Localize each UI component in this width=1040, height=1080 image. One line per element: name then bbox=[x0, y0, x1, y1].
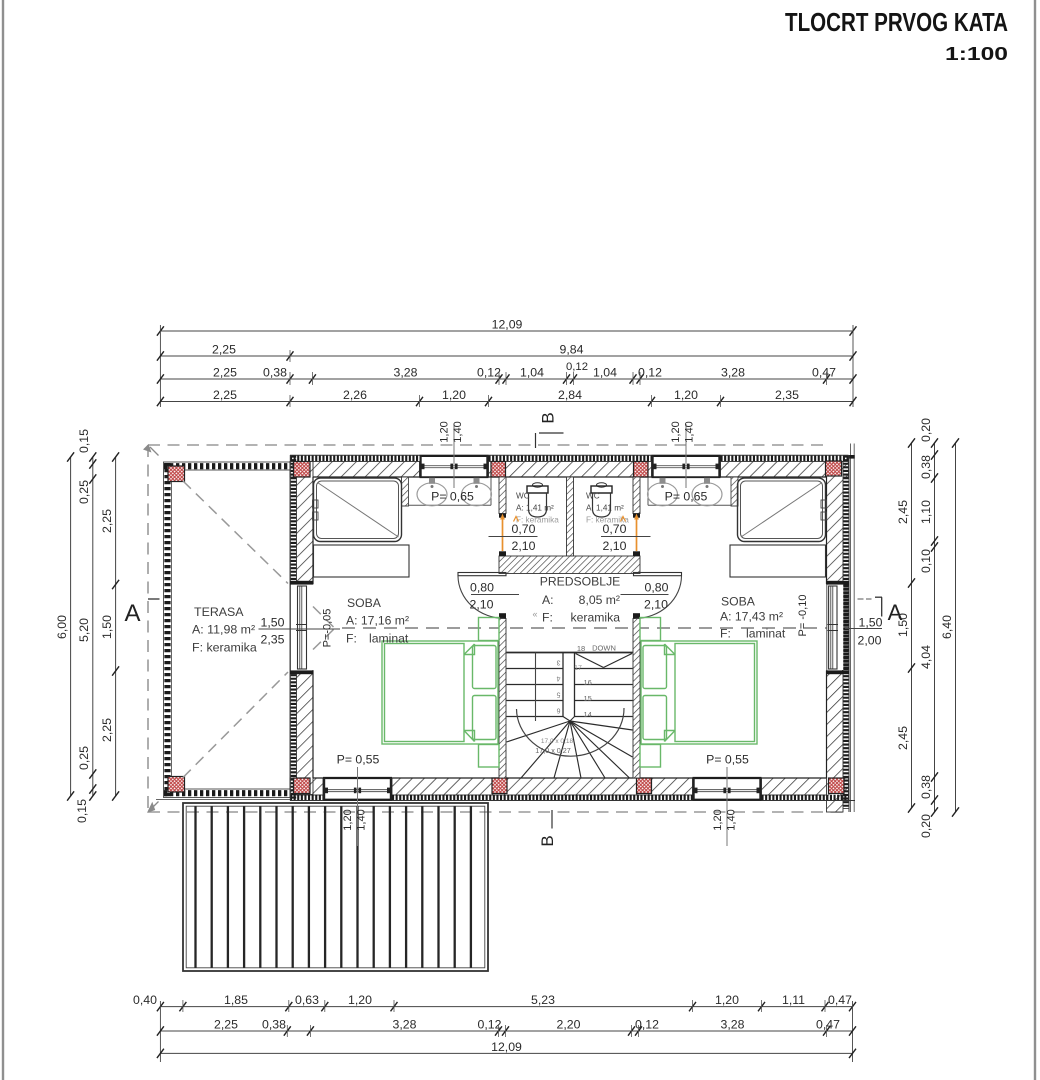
svg-text:2,00: 2,00 bbox=[858, 634, 882, 648]
svg-text:F:: F: bbox=[542, 611, 553, 625]
svg-text:A: A bbox=[124, 600, 140, 627]
svg-text:18: 18 bbox=[577, 644, 585, 653]
svg-text:2,84: 2,84 bbox=[558, 388, 582, 402]
svg-text:B: B bbox=[539, 412, 558, 423]
svg-text:2,45: 2,45 bbox=[896, 500, 910, 524]
svg-text:3,28: 3,28 bbox=[393, 1018, 417, 1032]
svg-text:12,09: 12,09 bbox=[491, 1040, 522, 1054]
svg-text:1,04: 1,04 bbox=[520, 366, 544, 380]
svg-text:A: 11,98 m²: A: 11,98 m² bbox=[192, 623, 255, 637]
svg-text:0,80: 0,80 bbox=[645, 581, 669, 595]
svg-text:6: 6 bbox=[556, 707, 560, 714]
svg-text:TLOCRT PRVOG KATA: TLOCRT PRVOG KATA bbox=[785, 7, 1008, 37]
svg-text:TERASA: TERASA bbox=[194, 605, 244, 619]
svg-text:A: A bbox=[888, 600, 903, 625]
svg-text:0,47: 0,47 bbox=[816, 1018, 840, 1032]
svg-text:PREDSOBLJE: PREDSOBLJE bbox=[540, 575, 621, 589]
svg-text:0,25: 0,25 bbox=[77, 480, 91, 504]
svg-text:3,28: 3,28 bbox=[721, 366, 745, 380]
svg-text:5,23: 5,23 bbox=[531, 993, 555, 1007]
svg-text:6,00: 6,00 bbox=[55, 615, 69, 639]
svg-text:1,40: 1,40 bbox=[726, 809, 738, 830]
svg-text:F:: F: bbox=[346, 632, 357, 646]
svg-text:2,25: 2,25 bbox=[213, 388, 237, 402]
svg-text:1,20: 1,20 bbox=[670, 421, 682, 442]
svg-text:P= 0,65: P= 0,65 bbox=[431, 490, 474, 504]
svg-text:DOWN: DOWN bbox=[592, 644, 616, 653]
svg-text:3,28: 3,28 bbox=[394, 366, 418, 380]
svg-text:0,20: 0,20 bbox=[919, 418, 933, 442]
svg-text:5: 5 bbox=[556, 691, 560, 698]
svg-text:2,25: 2,25 bbox=[212, 343, 236, 357]
svg-text:6,40: 6,40 bbox=[940, 615, 954, 639]
svg-text:0,12: 0,12 bbox=[478, 1018, 502, 1032]
svg-text:0,15: 0,15 bbox=[75, 799, 89, 823]
svg-text:16: 16 bbox=[584, 678, 592, 687]
svg-text:2,10: 2,10 bbox=[512, 539, 536, 553]
svg-text:1,85: 1,85 bbox=[224, 993, 248, 1007]
svg-text:2,10: 2,10 bbox=[603, 539, 627, 553]
svg-text:P=-0,05: P=-0,05 bbox=[322, 609, 334, 648]
svg-text:2,25: 2,25 bbox=[100, 509, 114, 533]
svg-text:2,26: 2,26 bbox=[343, 388, 367, 402]
svg-text:14: 14 bbox=[584, 710, 592, 719]
svg-text:F:: F: bbox=[720, 627, 731, 641]
svg-text:1,20: 1,20 bbox=[442, 388, 466, 402]
svg-text:0,25: 0,25 bbox=[77, 746, 91, 770]
svg-text:laminat: laminat bbox=[369, 632, 409, 646]
svg-text:F: keramika: F: keramika bbox=[192, 641, 257, 655]
svg-text:SOBA: SOBA bbox=[347, 596, 382, 610]
svg-text:0,47: 0,47 bbox=[812, 366, 836, 380]
svg-text:A: 1,41 m²: A: 1,41 m² bbox=[516, 504, 554, 513]
svg-text:1,11: 1,11 bbox=[782, 993, 805, 1007]
svg-text:2,20: 2,20 bbox=[557, 1018, 581, 1032]
svg-text:P= 0,65: P= 0,65 bbox=[665, 490, 708, 504]
svg-text:2,10: 2,10 bbox=[644, 598, 668, 612]
svg-text:0,70: 0,70 bbox=[512, 522, 536, 536]
svg-text:«: « bbox=[532, 609, 537, 619]
svg-text:1,20: 1,20 bbox=[715, 993, 739, 1007]
svg-text:1,20: 1,20 bbox=[348, 993, 372, 1007]
svg-text:0,38: 0,38 bbox=[262, 1018, 286, 1032]
svg-text:WC: WC bbox=[516, 492, 530, 501]
svg-text:1,50: 1,50 bbox=[100, 615, 114, 639]
svg-text:17,0 x 0,27: 17,0 x 0,27 bbox=[535, 746, 571, 755]
svg-text:4: 4 bbox=[556, 675, 560, 682]
svg-text:1,20: 1,20 bbox=[712, 809, 724, 830]
svg-text:1:100: 1:100 bbox=[945, 43, 1008, 64]
svg-text:0,12: 0,12 bbox=[477, 366, 501, 380]
svg-text:A: 17,43 m²: A: 17,43 m² bbox=[720, 610, 783, 624]
svg-text:2,45: 2,45 bbox=[896, 726, 910, 750]
svg-text:8,05 m²: 8,05 m² bbox=[579, 593, 620, 607]
svg-text:1,50: 1,50 bbox=[261, 616, 285, 630]
svg-text:1,10: 1,10 bbox=[919, 500, 933, 524]
svg-text:A:: A: bbox=[542, 593, 554, 607]
svg-text:B: B bbox=[538, 835, 557, 846]
svg-text:9,84: 9,84 bbox=[560, 343, 584, 357]
svg-text:17,0 x 0,18: 17,0 x 0,18 bbox=[541, 738, 574, 745]
svg-text:0,70: 0,70 bbox=[603, 522, 627, 536]
svg-text:WC: WC bbox=[586, 492, 600, 501]
svg-text:P= -0,10: P= -0,10 bbox=[797, 595, 809, 637]
svg-text:15: 15 bbox=[584, 694, 592, 703]
svg-text:3: 3 bbox=[556, 659, 560, 666]
svg-text:2,10: 2,10 bbox=[470, 598, 494, 612]
svg-text:17: 17 bbox=[574, 665, 582, 672]
svg-text:A: 17,16 m²: A: 17,16 m² bbox=[346, 614, 409, 628]
svg-text:0,15: 0,15 bbox=[77, 429, 91, 453]
svg-text:4,04: 4,04 bbox=[919, 645, 933, 669]
svg-text:1,40: 1,40 bbox=[452, 421, 464, 442]
svg-text:laminat: laminat bbox=[746, 627, 786, 641]
svg-text:0,40: 0,40 bbox=[133, 993, 157, 1007]
svg-text:0,12: 0,12 bbox=[566, 361, 588, 373]
svg-text:1,20: 1,20 bbox=[674, 388, 698, 402]
svg-text:keramika: keramika bbox=[571, 611, 621, 625]
svg-text:1,20: 1,20 bbox=[342, 809, 354, 830]
svg-text:0,38: 0,38 bbox=[919, 455, 933, 479]
svg-text:1,04: 1,04 bbox=[593, 366, 617, 380]
svg-text:SOBA: SOBA bbox=[721, 595, 756, 609]
svg-text:1,50: 1,50 bbox=[859, 616, 883, 630]
svg-text:P= 0,55: P= 0,55 bbox=[706, 753, 749, 767]
svg-text:1,40: 1,40 bbox=[684, 421, 696, 442]
svg-text:0,80: 0,80 bbox=[470, 581, 494, 595]
svg-text:0,63: 0,63 bbox=[295, 993, 319, 1007]
svg-text:3,28: 3,28 bbox=[721, 1018, 745, 1032]
svg-text:A: 1,41 m²: A: 1,41 m² bbox=[586, 504, 624, 513]
svg-text:2,35: 2,35 bbox=[775, 388, 799, 402]
svg-text:0,20: 0,20 bbox=[919, 814, 933, 838]
svg-text:1,40: 1,40 bbox=[356, 809, 368, 830]
svg-text:0,38: 0,38 bbox=[263, 366, 287, 380]
svg-text:2,25: 2,25 bbox=[213, 366, 237, 380]
svg-text:5,20: 5,20 bbox=[77, 618, 91, 642]
svg-text:0,12: 0,12 bbox=[638, 366, 662, 380]
svg-text:P= 0,55: P= 0,55 bbox=[337, 753, 380, 767]
svg-text:2,35: 2,35 bbox=[261, 633, 285, 647]
svg-text:0,47: 0,47 bbox=[828, 993, 852, 1007]
svg-text:1,20: 1,20 bbox=[439, 421, 451, 442]
svg-text:0,10: 0,10 bbox=[919, 549, 933, 573]
svg-text:0,38: 0,38 bbox=[919, 775, 933, 799]
svg-text:12,09: 12,09 bbox=[492, 318, 523, 332]
svg-text:2,25: 2,25 bbox=[214, 1018, 238, 1032]
svg-text:2,25: 2,25 bbox=[100, 718, 114, 742]
